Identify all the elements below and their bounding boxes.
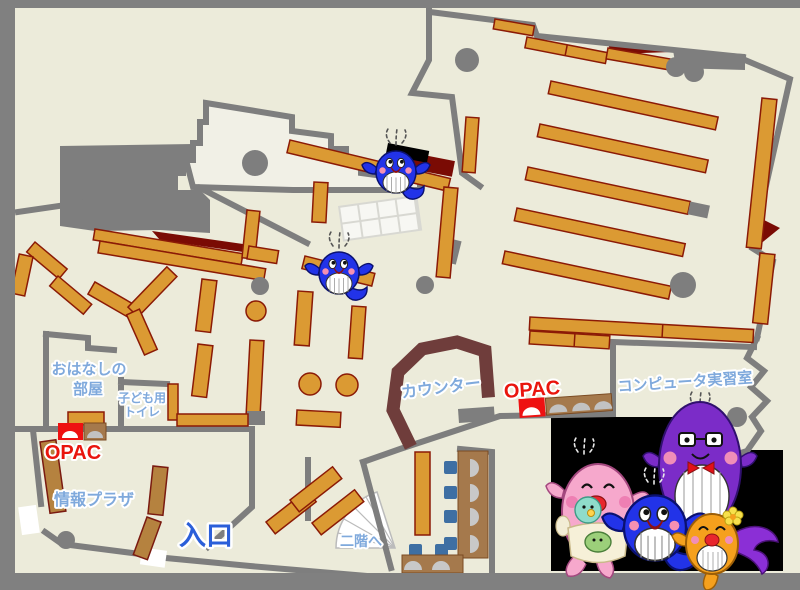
label-kids-toil-1: 子ども用 <box>118 391 166 405</box>
opac-station-left <box>58 423 106 440</box>
label-opac-right: OPAC <box>503 377 561 403</box>
library-floor-map: おはなしの 部屋 子ども用 トイレ OPAC 情報プラザ 入口 二階へ カウンタ… <box>0 0 800 590</box>
label-info-plaza: 情報プラザ <box>54 490 134 509</box>
frame-left <box>0 0 15 590</box>
frame-bottom <box>0 573 800 590</box>
staff-desk <box>458 406 495 422</box>
label-to-2f: 二階へ <box>340 533 382 549</box>
floor-map-canvas: おはなしの 部屋 子ども用 トイレ OPAC 情報プラザ 入口 二階へ カウンタ… <box>0 0 800 590</box>
label-storytelling-room-2: 部屋 <box>73 380 103 398</box>
label-storytelling-room-1: おはなしの <box>51 361 126 378</box>
frame-top <box>0 0 800 8</box>
label-opac-left: OPAC <box>45 442 101 464</box>
label-entrance: 入口 <box>179 521 233 551</box>
computer-tables <box>402 451 488 573</box>
label-kids-toilet-2: トイレ <box>124 405 160 419</box>
